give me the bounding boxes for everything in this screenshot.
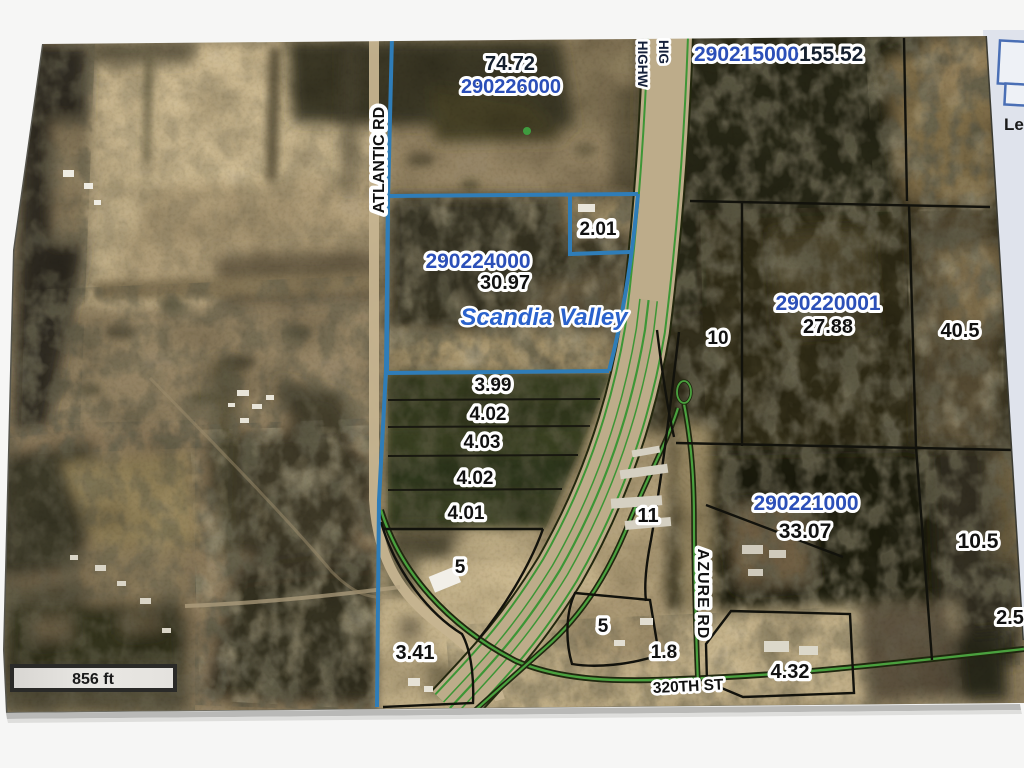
svg-text:10.5: 10.5 (958, 530, 999, 553)
svg-text:4.02: 4.02 (470, 404, 507, 425)
svg-text:5: 5 (598, 616, 609, 637)
svg-text:Le: Le (1004, 115, 1024, 134)
svg-text:5: 5 (455, 557, 466, 578)
svg-text:290220001: 290220001 (775, 292, 880, 315)
svg-text:2.5: 2.5 (996, 607, 1024, 629)
svg-text:11: 11 (637, 505, 658, 527)
svg-text:290221000: 290221000 (753, 492, 858, 515)
svg-text:33.07: 33.07 (779, 520, 832, 543)
svg-text:4.01: 4.01 (448, 503, 485, 524)
svg-text:AZURE RD: AZURE RD (694, 549, 711, 640)
svg-text:Scandia Valley: Scandia Valley (460, 304, 629, 331)
svg-text:3.99: 3.99 (475, 375, 512, 396)
svg-text:4.03: 4.03 (464, 432, 501, 453)
svg-text:4.02: 4.02 (457, 468, 494, 489)
svg-text:290215000155.52: 290215000155.52 (694, 43, 863, 66)
svg-text:4.32: 4.32 (771, 661, 810, 683)
svg-text:10: 10 (707, 328, 728, 349)
svg-text:2.01: 2.01 (580, 219, 617, 240)
svg-text:HIG: HIG (656, 40, 671, 64)
svg-text:856 ft: 856 ft (72, 671, 114, 688)
svg-text:290226000: 290226000 (461, 76, 561, 98)
svg-text:74.72: 74.72 (485, 53, 535, 75)
svg-text:ATLANTIC RD: ATLANTIC RD (371, 107, 388, 213)
svg-text:HIGHW: HIGHW (635, 41, 650, 88)
svg-text:40.5: 40.5 (941, 320, 980, 342)
svg-text:3.41: 3.41 (396, 642, 435, 664)
svg-text:1.8: 1.8 (651, 642, 677, 663)
svg-text:27.88: 27.88 (803, 316, 853, 338)
svg-text:290224000: 290224000 (425, 250, 530, 273)
svg-text:30.97: 30.97 (480, 272, 530, 294)
